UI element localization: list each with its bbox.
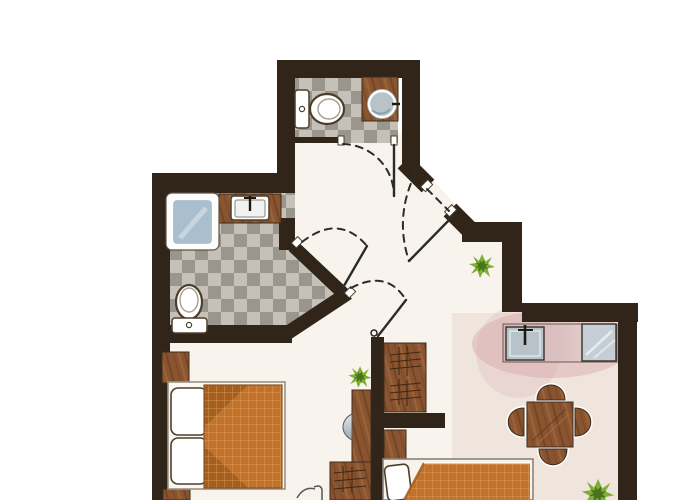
second-bed [383,459,533,500]
floor-plan-drawing [0,0,700,500]
toilet-tank-top [295,90,309,128]
wall-right-vertical [502,222,522,312]
pillow [171,388,207,435]
pillow [171,438,207,484]
blanket-grid [404,463,530,500]
wall-top-bath-right [402,60,420,165]
wall-stub-horizontal [384,413,445,428]
toilet-tank-left [172,318,207,333]
tv-panel [352,390,371,468]
wall-divider [371,337,384,500]
kitchen [503,324,617,362]
wall-right-outer [618,303,637,500]
nightstand-bottom [163,489,190,500]
jamb-top-bath-right [391,136,397,145]
nightstand-top [162,352,189,383]
wall-top-bath-top [277,60,420,78]
floor-plan-canvas [0,0,700,500]
wall-left-bath-top [152,173,295,193]
blanket-grid [204,385,282,488]
wall-top-bath-doorsill [293,137,343,143]
